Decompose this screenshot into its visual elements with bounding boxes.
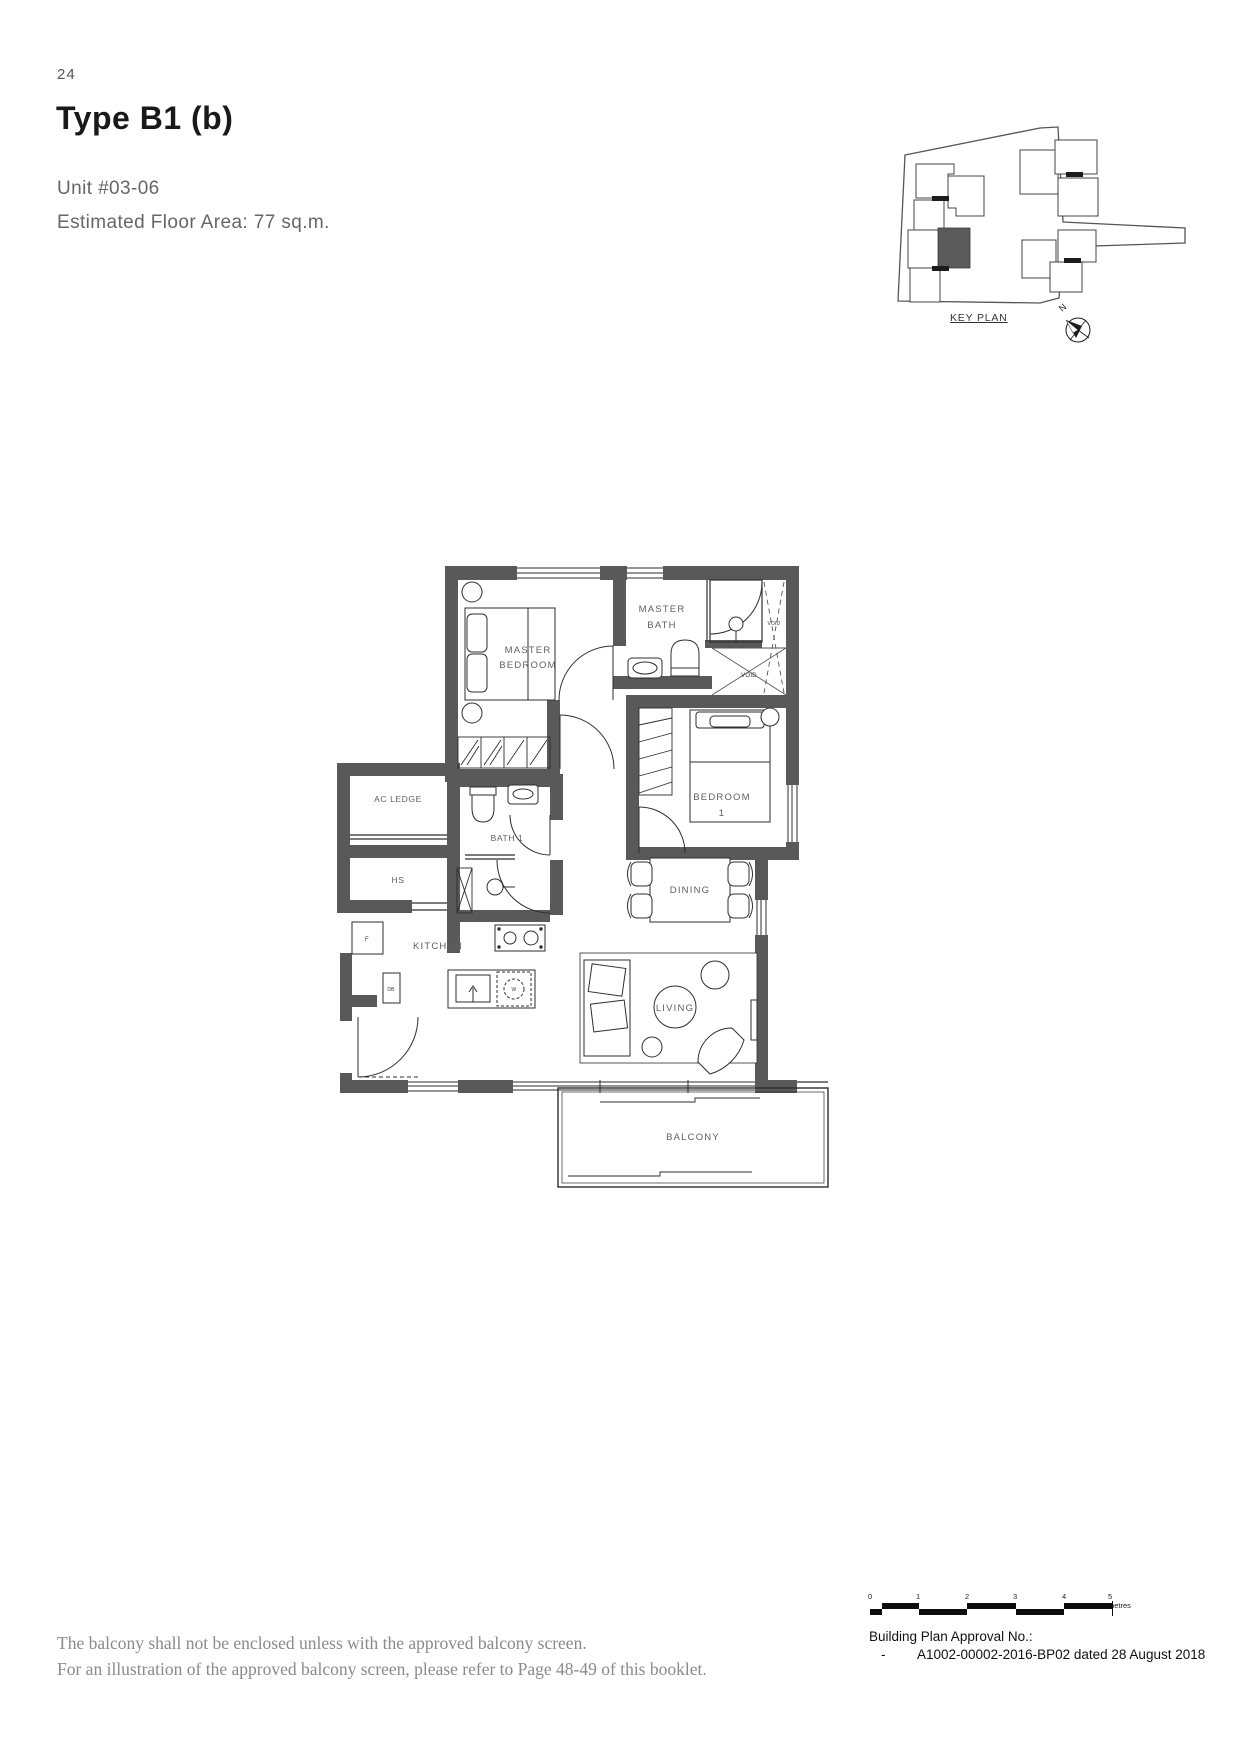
furniture [352, 582, 779, 1074]
scale-tick-0: 0 [868, 1592, 872, 1601]
key-plan-drawing: N [880, 100, 1210, 360]
key-plan-label: KEY PLAN [950, 312, 1008, 324]
highlighted-unit [938, 228, 970, 268]
label-bedroom1-2: 1 [719, 808, 725, 819]
scale-tick-3: 3 [1013, 1592, 1017, 1601]
label-void-strip: VOID [767, 621, 780, 627]
label-kitchen: KITCHEN [413, 941, 463, 952]
floor-area: Estimated Floor Area: 77 sq.m. [57, 212, 330, 234]
scale-tick-2: 2 [965, 1592, 969, 1601]
building-footprints [908, 140, 1098, 302]
north-arrow: N [1057, 302, 1090, 342]
approval-block: Building Plan Approval No.: - A1002-0000… [869, 1628, 1205, 1664]
label-void-square: VOID [741, 673, 757, 679]
scale-bar-segments [870, 1603, 1113, 1615]
label-bedroom1-1: BEDROOM [693, 792, 751, 803]
label-hs: HS [391, 875, 404, 885]
page-number: 24 [57, 66, 76, 83]
label-db: DB [387, 987, 395, 993]
approval-title: Building Plan Approval No.: [869, 1628, 1205, 1646]
brochure-page: 24 Type B1 (b) Unit #03-06 Estimated Flo… [0, 0, 1240, 1754]
balcony-note-line2: For an illustration of the approved balc… [57, 1656, 707, 1682]
label-washer: W [512, 987, 517, 993]
floor-plan: MASTER BEDROOM MASTER BATH VOID VOID BED… [300, 550, 860, 1215]
balcony-note-line1: The balcony shall not be enclosed unless… [57, 1630, 707, 1656]
unit-type-title: Type B1 (b) [56, 100, 233, 137]
north-label: N [1057, 302, 1068, 314]
unit-number: Unit #03-06 [57, 178, 160, 200]
label-living: LIVING [656, 1003, 694, 1014]
scale-tick-1: 1 [916, 1592, 920, 1601]
label-master-bedroom-1: MASTER [505, 645, 552, 656]
label-fridge: F [365, 937, 369, 943]
label-master-bedroom-2: BEDROOM [499, 660, 557, 671]
floor-plan-drawing: MASTER BEDROOM MASTER BATH VOID VOID BED… [300, 550, 860, 1215]
scale-end-tick [1112, 1601, 1113, 1616]
approval-dash: - [869, 1646, 917, 1664]
label-balcony: BALCONY [666, 1132, 720, 1143]
label-dining: DINING [670, 885, 710, 896]
key-plan: N KEY PLAN [880, 100, 1210, 360]
label-master-bath-2: BATH [647, 620, 676, 631]
balcony-notes: The balcony shall not be enclosed unless… [57, 1630, 707, 1682]
approval-number: A1002-00002-2016-BP02 dated 28 August 20… [917, 1646, 1205, 1664]
label-ac-ledge: AC LEDGE [374, 794, 422, 804]
label-master-bath-1: MASTER [639, 604, 686, 615]
label-bath1: BATH 1 [491, 833, 524, 843]
scale-tick-4: 4 [1062, 1592, 1066, 1601]
scale-bar: 0 1 2 3 4 5 metres [870, 1592, 1130, 1622]
